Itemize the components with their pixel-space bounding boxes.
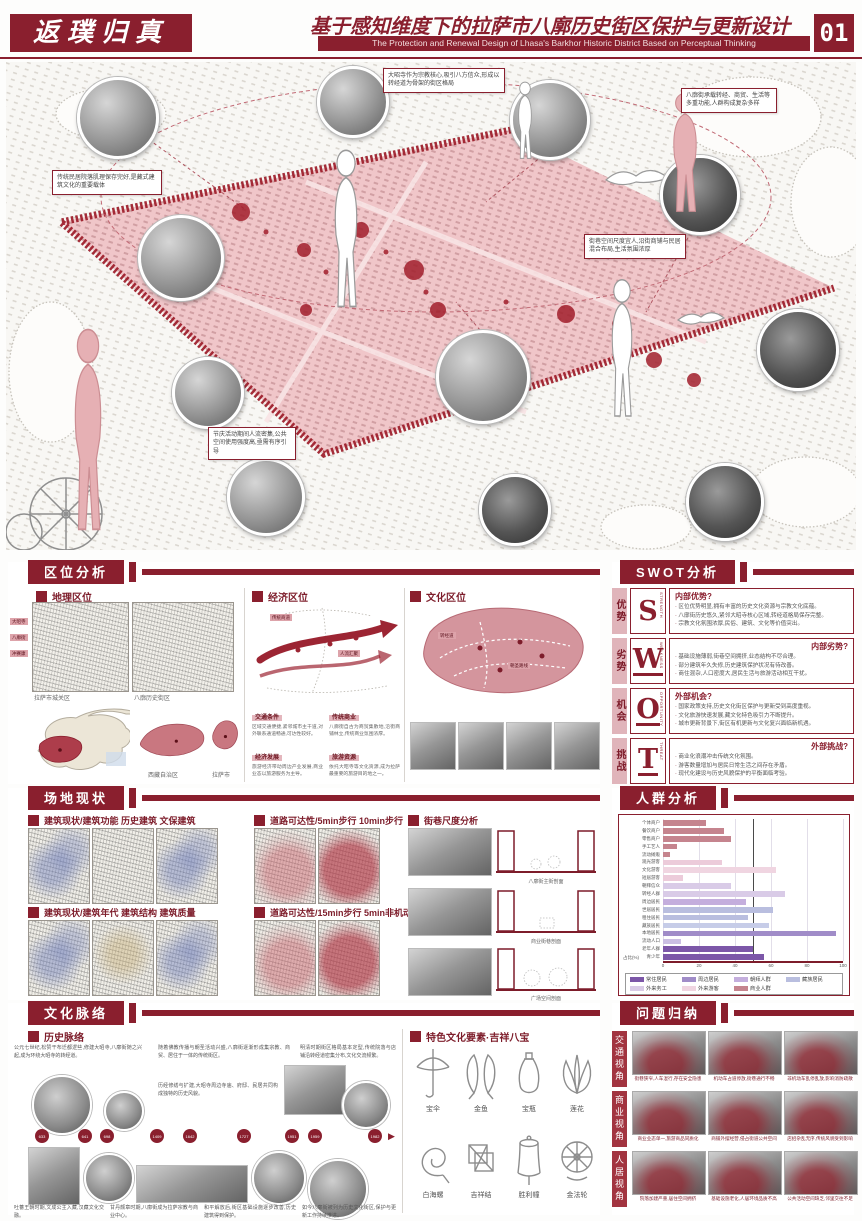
bar xyxy=(663,852,670,858)
swot-cn-label: 机会 xyxy=(612,688,627,734)
econ-block: 旅游资源依托大昭寺等文化资源,成为拉萨最重要的旅游目的地之一。 xyxy=(329,746,400,782)
tibet-map xyxy=(136,710,208,768)
symbol-victory-banner: 胜利幢 xyxy=(506,1133,552,1200)
map-thumb-walk15 xyxy=(254,920,316,996)
problem-item: 院落加建严重,居住空间拥挤 xyxy=(632,1151,704,1202)
crowd-plot: 个体商户餐饮商户零售商户手工艺人流动摊贩观光游客文化游客短居游客朝拜信众转经人群… xyxy=(663,819,843,961)
section-accent xyxy=(740,562,747,582)
swot-letter-box: OOPPORTUNITY xyxy=(630,688,666,734)
bar-row: 手工艺人 xyxy=(663,843,843,851)
bar-row: 本地居民 xyxy=(663,929,843,937)
swot-letter-box: SSTRENGTH xyxy=(630,588,666,634)
swot-cn-label: 优势 xyxy=(612,588,627,634)
sub-eight-symbols: 特色文化要素·吉祥八宝 xyxy=(410,1029,529,1044)
bar-track xyxy=(663,954,843,960)
axis-unit: 占比(%) xyxy=(623,955,639,961)
history-paragraph: 明清时期街区格局基本定型,传统院落与店铺沿转经道密集分布,文化交流频繁。 xyxy=(300,1045,396,1060)
symbol-label: 金法轮 xyxy=(554,1190,600,1200)
bar-row: 青少年 xyxy=(663,953,843,961)
bar-row: 短居游客 xyxy=(663,874,843,882)
bar-label: 餐饮商户 xyxy=(625,828,660,834)
bar xyxy=(663,860,722,866)
street-section-2 xyxy=(496,886,596,936)
history-paragraph: 如今八廓街被列为历史文化街区,保护与更新工作持续推进。 xyxy=(302,1205,396,1220)
bar-track xyxy=(663,946,843,952)
econ-block: 交通条件区域交通便捷,紧邻城市主干道,对外联系通道畅通,可达性较好。 xyxy=(252,706,323,742)
symbol-treasure-vase: 宝瓶 xyxy=(506,1047,552,1114)
bar xyxy=(663,820,706,826)
bar xyxy=(663,946,753,952)
china-map xyxy=(18,704,130,778)
symbol-label: 金鱼 xyxy=(458,1104,504,1114)
econ-block-body: 旅游经济带动周边产业发展,商业业态以旅游服务为主导。 xyxy=(252,765,323,779)
problem-item: 基础设施老化,人居环境品质不高 xyxy=(708,1151,780,1202)
x-tick-label: 60 xyxy=(768,963,773,968)
bar-label: 世居居民 xyxy=(625,907,660,913)
bar-track xyxy=(663,836,843,842)
legend-swatch xyxy=(682,986,696,991)
problem-item: 商铺外摆经营,侵占街道公共空间 xyxy=(708,1091,780,1142)
bar-track xyxy=(663,899,843,905)
photo-street-2 xyxy=(138,215,224,301)
header-divider xyxy=(0,57,862,59)
bar xyxy=(663,907,773,913)
site-label-2: 道路可达性/5min步行 10min步行 xyxy=(254,814,403,827)
swot-body: 内部劣势?基础设施薄弱,街巷空间拥挤,业态结构不尽合理。部分建筑年久失修,历史建… xyxy=(669,638,854,684)
street-photo-2 xyxy=(408,888,492,936)
legend-item: 外来游客 xyxy=(682,985,734,992)
legend-item: 常住居民 xyxy=(630,976,682,983)
section-title: 区位分析 xyxy=(28,560,124,584)
bar-track xyxy=(663,907,843,913)
swot-letter-box: WWEAKNESS xyxy=(630,638,666,684)
history-paragraph: 吐蕃王朝时期,文成公主入藏,汉藏文化交融。 xyxy=(14,1205,104,1220)
swot-en: WEAKNESS xyxy=(659,642,664,669)
problem-caption: 非机动车乱停乱放,影响消防疏散 xyxy=(784,1076,856,1082)
econ-blocks: 交通条件区域交通便捷,紧邻城市主干道,对外联系通道畅通,可达性较好。 传统商业八… xyxy=(252,706,400,782)
swot-bullet: 商业化浪潮冲击传统文化氛围。 xyxy=(675,753,848,762)
problem-caption: 商铺外摆经营,侵占街道公共空间 xyxy=(708,1136,780,1142)
swot-body: 外部机会?国家政策支持,历史文化街区保护与更新受到高度重视。文化旅游快速发展,藏… xyxy=(669,688,854,734)
tab-commerce-view: 商业视角 xyxy=(612,1091,627,1147)
swot-bullets: 区位优势明显,拥有丰富的历史文化资源与宗教文化底蕴。八廓街历史悠久,紧邻大昭寺核… xyxy=(675,603,848,629)
section-rule xyxy=(753,569,854,575)
problem-photo xyxy=(708,1151,782,1195)
culture-photo xyxy=(458,722,504,770)
section-title: 问题归纳 xyxy=(620,1001,716,1025)
legend-swatch xyxy=(786,977,800,982)
section-crowd: 人群分析 个体商户餐饮商户零售商户手工艺人流动摊贩观光游客文化游客短居游客朝拜信… xyxy=(612,788,854,1000)
swot-bullet: 八廓街历史悠久,紧邻大昭寺核心区域,转经道格局保存完整。 xyxy=(675,612,848,621)
timeline-photo xyxy=(28,1147,80,1205)
econ-chip: 传统商道 xyxy=(270,614,292,621)
problem-caption: 商业业态单一,旅游商品同质化 xyxy=(632,1136,704,1142)
symbol-label: 胜利幢 xyxy=(506,1190,552,1200)
econ-block-heading: 传统商业 xyxy=(329,715,359,721)
timeline-year-dot: 1959 xyxy=(308,1129,322,1143)
photo-alley-1 xyxy=(757,309,839,391)
white-figure-1 xyxy=(324,146,368,318)
bar-track xyxy=(663,923,843,929)
legend-label: 周边居民 xyxy=(698,976,719,983)
bar-label: 短居游客 xyxy=(625,875,660,881)
swot-body: 外部挑战?商业化浪潮冲击传统文化氛围。游客数量增加与居民日常生活之间存在矛盾。现… xyxy=(669,738,854,784)
region-label: 拉萨市 xyxy=(212,770,230,779)
tab-living-view: 人居视角 xyxy=(612,1151,627,1207)
map-thumb-structure xyxy=(92,920,154,996)
history-paragraph: 历经修缮与扩建,大昭寺周边寺庙、府邸、民居共同构成独特的历史风貌。 xyxy=(158,1083,278,1098)
symbol-lotus: 莲花 xyxy=(554,1047,600,1114)
section-site: 场地现状 建筑现状/建筑功能 历史建筑 文保建筑 道路可达性/5min步行 10… xyxy=(8,788,600,1000)
bar-row: 观光游客 xyxy=(663,858,843,866)
crowd-chart: 个体商户餐饮商户零售商户手工艺人流动摊贩观光游客文化游客短居游客朝拜信众转经人群… xyxy=(618,814,850,996)
swot-row-threat: 挑战 TTHREAT 外部挑战?商业化浪潮冲击传统文化氛围。游客数量增加与居民日… xyxy=(612,738,854,784)
bar-label: 藏族居民 xyxy=(625,923,660,929)
symbol-parasol: 宝伞 xyxy=(410,1047,456,1114)
bar-label: 文化游客 xyxy=(625,867,660,873)
legend-item: 藏族居民 xyxy=(786,976,838,983)
street-section-1 xyxy=(496,826,596,876)
legend-swatch xyxy=(734,977,748,982)
bar-label: 流动人口 xyxy=(625,938,660,944)
map-caption: 拉萨市城关区 xyxy=(34,693,70,702)
section-accent xyxy=(721,788,728,808)
swot-letter: O xyxy=(636,696,660,726)
photo-street-3 xyxy=(172,357,244,429)
bar-track xyxy=(663,891,843,897)
swot-letter-box: TTHREAT xyxy=(630,738,666,784)
sub-history: 历史脉络 xyxy=(28,1029,84,1044)
econ-block: 经济发展旅游经济带动周边产业发展,商业业态以旅游服务为主导。 xyxy=(252,746,323,782)
swot-letter: S xyxy=(638,598,658,625)
swot-heading: 外部挑战? xyxy=(675,741,848,752)
problem-caption: 公共活动空间缺乏,邻里交往不足 xyxy=(784,1196,856,1202)
timeline-year-dot: 633 xyxy=(35,1129,49,1143)
bar xyxy=(663,923,769,929)
bar-row: 转经人群 xyxy=(663,890,843,898)
bar-row: 老年人群 xyxy=(663,945,843,953)
swot-en: OPPORTUNITY xyxy=(659,692,664,726)
divider xyxy=(404,588,405,782)
street-photo-1 xyxy=(408,828,492,876)
bar-track xyxy=(663,915,843,921)
swot-bullet: 部分建筑年久失修,历史建筑保护状况有待改善。 xyxy=(675,662,848,671)
problem-caption: 基础设施老化,人居环境品质不高 xyxy=(708,1196,780,1202)
main-title: 基于感知维度下的拉萨市八廓历史街区保护与更新设计 xyxy=(290,10,810,39)
bar-track xyxy=(663,875,843,881)
legend-label: 外来务工 xyxy=(646,985,667,992)
x-ticks: 020406080100 xyxy=(663,963,843,971)
timeline-year-dot: 1642 xyxy=(183,1129,197,1143)
timeline-year-dot: 1982 xyxy=(368,1129,382,1143)
bar xyxy=(663,875,683,881)
problem-caption: 院落加建严重,居住空间拥挤 xyxy=(632,1196,704,1202)
swot-bullet: 游客数量增加与居民日常生活之间存在矛盾。 xyxy=(675,762,848,771)
section-rule xyxy=(734,795,854,801)
street-caption: 八廓街主街剖面 xyxy=(496,878,596,885)
map-chip: 大昭寺 xyxy=(10,618,28,625)
econ-block-body: 区域交通便捷,紧邻城市主干道,对外联系通道畅通,可达性较好。 xyxy=(252,725,323,739)
swot-cn-label: 劣势 xyxy=(612,638,627,684)
econ-block-heading: 旅游资源 xyxy=(329,755,359,761)
history-paragraph: 甘丹颇章时期,八廓街成为拉萨宗教与商业中心。 xyxy=(110,1205,198,1220)
timeline-year-dot: 1951 xyxy=(285,1129,299,1143)
photo-building-1 xyxy=(317,66,389,138)
region-label: 西藏自治区 xyxy=(148,770,178,779)
bar-row: 藏族居民 xyxy=(663,922,843,930)
problem-caption: 机动车占道停放,街巷通行不畅 xyxy=(708,1076,780,1082)
map-thumb-function xyxy=(28,828,90,904)
hero-axonometric-map: 大昭寺作为宗教核心,吸引八方信众,形成以转经道为骨架的街区格局 传统民居院落肌理… xyxy=(6,62,856,550)
legend-label: 藏族居民 xyxy=(802,976,823,983)
problem-caption: 店招杂乱无序,传统风貌受到影响 xyxy=(784,1136,856,1142)
bar-row: 世居居民 xyxy=(663,906,843,914)
bar-row: 租住居民 xyxy=(663,914,843,922)
map-barkhor-district xyxy=(132,602,234,692)
subtitle-en: The Protection and Renewal Design of Lha… xyxy=(318,36,810,51)
bar-label: 观光游客 xyxy=(625,859,660,865)
problem-item: 机动车占道停放,街巷通行不畅 xyxy=(708,1031,780,1082)
problem-item: 商业业态单一,旅游商品同质化 xyxy=(632,1091,704,1142)
history-paragraph: 和平解放后,街区基础设施逐步改善,历史建筑得到保护。 xyxy=(204,1205,296,1220)
bar-label: 本地居民 xyxy=(625,930,660,936)
swot-bullet: 区位优势明显,拥有丰富的历史文化资源与宗教文化底蕴。 xyxy=(675,603,848,612)
swot-row-weakness: 劣势 WWEAKNESS 内部劣势?基础设施薄弱,街巷空间拥挤,业态结构不尽合理… xyxy=(612,638,854,684)
timeline-image xyxy=(32,1075,92,1135)
symbol-endless-knot: 吉祥结 xyxy=(458,1133,504,1200)
culture-route-map xyxy=(410,598,596,714)
bar-label: 个体商户 xyxy=(625,820,660,826)
problem-photo xyxy=(632,1151,706,1195)
problem-photo xyxy=(784,1031,858,1075)
x-tick-label: 40 xyxy=(732,963,737,968)
map-chip: 冲赛康 xyxy=(10,650,28,657)
section-rule xyxy=(142,1010,600,1016)
econ-block: 传统商业八廓街自古为商贸集散地,沿街商铺林立,传统商业氛围浓厚。 xyxy=(329,706,400,742)
legend-label: 商业人群 xyxy=(750,985,771,992)
bar-label: 转经人群 xyxy=(625,891,660,897)
swot-letter: T xyxy=(638,746,658,776)
timeline-year-dot: 1727 xyxy=(237,1129,251,1143)
section-accent xyxy=(129,788,136,808)
econ-block-heading: 交通条件 xyxy=(252,715,282,721)
map-chip: 八廓街 xyxy=(10,634,28,641)
problem-photo xyxy=(784,1091,858,1135)
x-tick-label: 0 xyxy=(662,963,665,968)
swot-bullet: 文化旅游快速发展,藏文化特色吸引力不断提升。 xyxy=(675,712,848,721)
swot-bullet: 基础设施薄弱,街巷空间拥挤,业态结构不尽合理。 xyxy=(675,653,848,662)
hero-annotation: 节庆活动期间人流密集,公共空间使用强度高,亟需有序引导 xyxy=(208,427,296,460)
section-location: 区位分析 地理区位 经济区位 文化区位 大昭寺 八廓街 冲赛康 拉萨市城关区 八… xyxy=(8,562,600,784)
bar xyxy=(663,954,764,960)
section-culture: 文化脉络 历史脉络 公元七世纪,松赞干布迁都逻些,修建大昭寺,八廓街随之兴起,成… xyxy=(8,1003,600,1215)
problem-photo xyxy=(708,1031,782,1075)
bar xyxy=(663,844,677,850)
legend-label: 外来游客 xyxy=(698,985,719,992)
bar xyxy=(663,899,746,905)
bar-track xyxy=(663,820,843,826)
section-accent xyxy=(129,562,136,582)
problem-item: 街巷狭窄,人车混行,存在安全隐患 xyxy=(632,1031,704,1082)
section-rule xyxy=(142,795,600,801)
map-city-district xyxy=(32,602,129,692)
timeline-arrow-icon: ▶ xyxy=(388,1131,395,1142)
street-caption: 广场空间剖面 xyxy=(496,995,596,1002)
swot-bullet: 宗教文化氛围浓厚,民俗、建筑、文化等价值突出。 xyxy=(675,620,848,629)
bar-row: 流动人口 xyxy=(663,937,843,945)
bar-label: 朝拜信众 xyxy=(625,883,660,889)
problem-photo xyxy=(784,1151,858,1195)
bar xyxy=(663,828,724,834)
section-title: 文化脉络 xyxy=(28,1001,124,1025)
legend-swatch xyxy=(682,977,696,982)
x-tick-label: 20 xyxy=(696,963,701,968)
econ-chip: 人流汇聚 xyxy=(338,650,360,657)
legend-swatch xyxy=(734,986,748,991)
section-problems: 问题归纳 交通视角 商业视角 人居视角 街巷狭窄,人车混行,存在安全隐患 机动车… xyxy=(612,1003,854,1215)
bar-row: 流动摊贩 xyxy=(663,851,843,859)
timeline-year-dot: 641 xyxy=(78,1129,92,1143)
map-thumb-heritage xyxy=(156,828,218,904)
section-head: 区位分析 xyxy=(8,562,600,582)
photo-street-4 xyxy=(227,458,305,536)
bar xyxy=(663,883,731,889)
econ-block-body: 八廓街自古为商贸集散地,沿街商铺林立,传统商业氛围浓厚。 xyxy=(329,725,400,739)
bar-row: 朝拜信众 xyxy=(663,882,843,890)
map-thumb-walk10 xyxy=(318,828,380,904)
timeline-image xyxy=(84,1153,134,1203)
swot-en: STRENGTH xyxy=(659,592,664,618)
photo-crowd-center xyxy=(436,330,530,424)
swot-heading: 内部劣势? xyxy=(675,641,848,652)
bar-track xyxy=(663,931,843,937)
bar-track xyxy=(663,852,843,858)
white-figure-3 xyxy=(512,80,538,164)
timeline-photo xyxy=(136,1165,248,1203)
problem-photo xyxy=(632,1031,706,1075)
symbol-dharma-wheel: 金法轮 xyxy=(554,1133,600,1200)
symbol-label: 白海螺 xyxy=(410,1190,456,1200)
timeline-year-dot: 1409 xyxy=(150,1129,164,1143)
symbol-golden-fish: 金鱼 xyxy=(458,1047,504,1114)
timeline-photo xyxy=(284,1065,346,1115)
legend-item: 朝拜人群 xyxy=(734,976,786,983)
site-label-3: 建筑现状/建筑年代 建筑结构 建筑质量 xyxy=(28,906,196,919)
legend-item: 商业人群 xyxy=(734,985,786,992)
symbol-label: 莲花 xyxy=(554,1104,600,1114)
problem-item: 公共活动空间缺乏,邻里交往不足 xyxy=(784,1151,856,1202)
bar xyxy=(663,867,776,873)
bar-row: 零售商户 xyxy=(663,835,843,843)
divider xyxy=(402,1029,403,1213)
bar-row: 周边居民 xyxy=(663,898,843,906)
legend-item: 外来务工 xyxy=(630,985,682,992)
page-number: 01 xyxy=(814,14,854,52)
lhasa-map xyxy=(206,712,242,764)
history-paragraph: 公元七世纪,松赞干布迁都逻些,修建大昭寺,八廓街随之兴起,成为环绕大昭寺的转经道… xyxy=(14,1045,142,1060)
bar-row: 餐饮商户 xyxy=(663,827,843,835)
problem-item: 店招杂乱无序,传统风貌受到影响 xyxy=(784,1091,856,1142)
section-title: SWOT分析 xyxy=(620,560,735,584)
site-label-1: 建筑现状/建筑功能 历史建筑 文保建筑 xyxy=(28,814,196,827)
white-figure-2 xyxy=(602,276,642,426)
swot-row-strength: 优势 SSTRENGTH 内部优势?区位优势明显,拥有丰富的历史文化资源与宗教文… xyxy=(612,588,854,634)
map-thumb-walk5 xyxy=(254,828,316,904)
legend-label: 常住居民 xyxy=(646,976,667,983)
legend-swatch xyxy=(630,977,644,982)
timeline-year-dot: 698 xyxy=(100,1129,114,1143)
bar xyxy=(663,915,748,921)
swot-en: THREAT xyxy=(659,742,664,761)
section-swot: SWOT分析 优势 SSTRENGTH 内部优势?区位优势明显,拥有丰富的历史文… xyxy=(612,562,854,784)
symbol-label: 宝瓶 xyxy=(506,1104,552,1114)
swot-bullet: 城市更新背景下,街区有机更新与文化复兴面临新机遇。 xyxy=(675,720,848,729)
bar-track xyxy=(663,883,843,889)
section-title: 场地现状 xyxy=(28,786,124,810)
culture-photo xyxy=(554,722,600,770)
culture-chip: 朝圣路线 xyxy=(508,662,530,669)
symbol-label: 宝伞 xyxy=(410,1104,456,1114)
bar xyxy=(663,836,731,842)
swot-body: 内部优势?区位优势明显,拥有丰富的历史文化资源与宗教文化底蕴。八廓街历史悠久,紧… xyxy=(669,588,854,634)
swot-cn-label: 挑战 xyxy=(612,738,627,784)
map-caption: 八廓历史街区 xyxy=(134,693,170,702)
section-accent xyxy=(721,1003,728,1023)
swot-heading: 外部机会? xyxy=(675,691,848,702)
section-title: 人群分析 xyxy=(620,786,716,810)
timeline-image xyxy=(252,1151,306,1205)
photo-alley-2 xyxy=(479,474,551,546)
section-rule xyxy=(142,569,600,575)
bar xyxy=(663,891,785,897)
bar xyxy=(663,939,681,945)
street-analysis-label: 街巷尺度分析 xyxy=(408,814,478,827)
swot-bullets: 国家政策支持,历史文化街区保护与更新受到高度重视。文化旅游快速发展,藏文化特色吸… xyxy=(675,703,848,729)
swot-bullet: 现代化建设与历史风貌保护的平衡面临考验。 xyxy=(675,770,848,779)
x-tick-label: 80 xyxy=(804,963,809,968)
swot-bullet: 商住混杂,人口密度大,居民生活与旅游活动相互干扰。 xyxy=(675,670,848,679)
photo-street-1 xyxy=(77,77,159,159)
timeline-image xyxy=(104,1091,144,1131)
crowd-legend: 常住居民周边居民朝拜人群藏族居民外来务工外来游客商业人群 xyxy=(625,973,843,995)
bar-track xyxy=(663,844,843,850)
timeline-image xyxy=(342,1081,390,1129)
x-tick-label: 100 xyxy=(839,963,847,968)
bar-row: 个体商户 xyxy=(663,819,843,827)
swot-bullet: 国家政策支持,历史文化街区保护与更新受到高度重视。 xyxy=(675,703,848,712)
map-thumb-historic xyxy=(92,828,154,904)
gridline xyxy=(843,819,844,961)
swot-heading: 内部优势? xyxy=(675,591,848,602)
bar-label: 流动摊贩 xyxy=(625,852,660,858)
tab-traffic-view: 交通视角 xyxy=(612,1031,627,1087)
bar-label: 零售商户 xyxy=(625,836,660,842)
bar xyxy=(663,931,836,937)
hero-annotation: 八廓街承载转经、商贸、生活等多重功能,人群构成复杂多样 xyxy=(681,88,777,113)
hero-annotation: 传统民居院落肌理保存完好,是藏式建筑文化的重要载体 xyxy=(52,170,162,195)
map-thumb-bike5 xyxy=(318,920,380,996)
culture-photo xyxy=(410,722,456,770)
pink-figure-1 xyxy=(62,324,114,544)
problem-photo xyxy=(632,1091,706,1135)
bar-track xyxy=(663,939,843,945)
problem-item: 非机动车乱停乱放,影响消防疏散 xyxy=(784,1031,856,1082)
hero-annotation: 大昭寺作为宗教核心,吸引八方信众,形成以转经道为骨架的街区格局 xyxy=(383,68,505,93)
poster: { "header":{ "logo":"返璞归真", "title_cn":"… xyxy=(0,0,862,1221)
bar-label: 周边居民 xyxy=(625,899,660,905)
bar-track xyxy=(663,867,843,873)
bar-row: 文化游客 xyxy=(663,866,843,874)
